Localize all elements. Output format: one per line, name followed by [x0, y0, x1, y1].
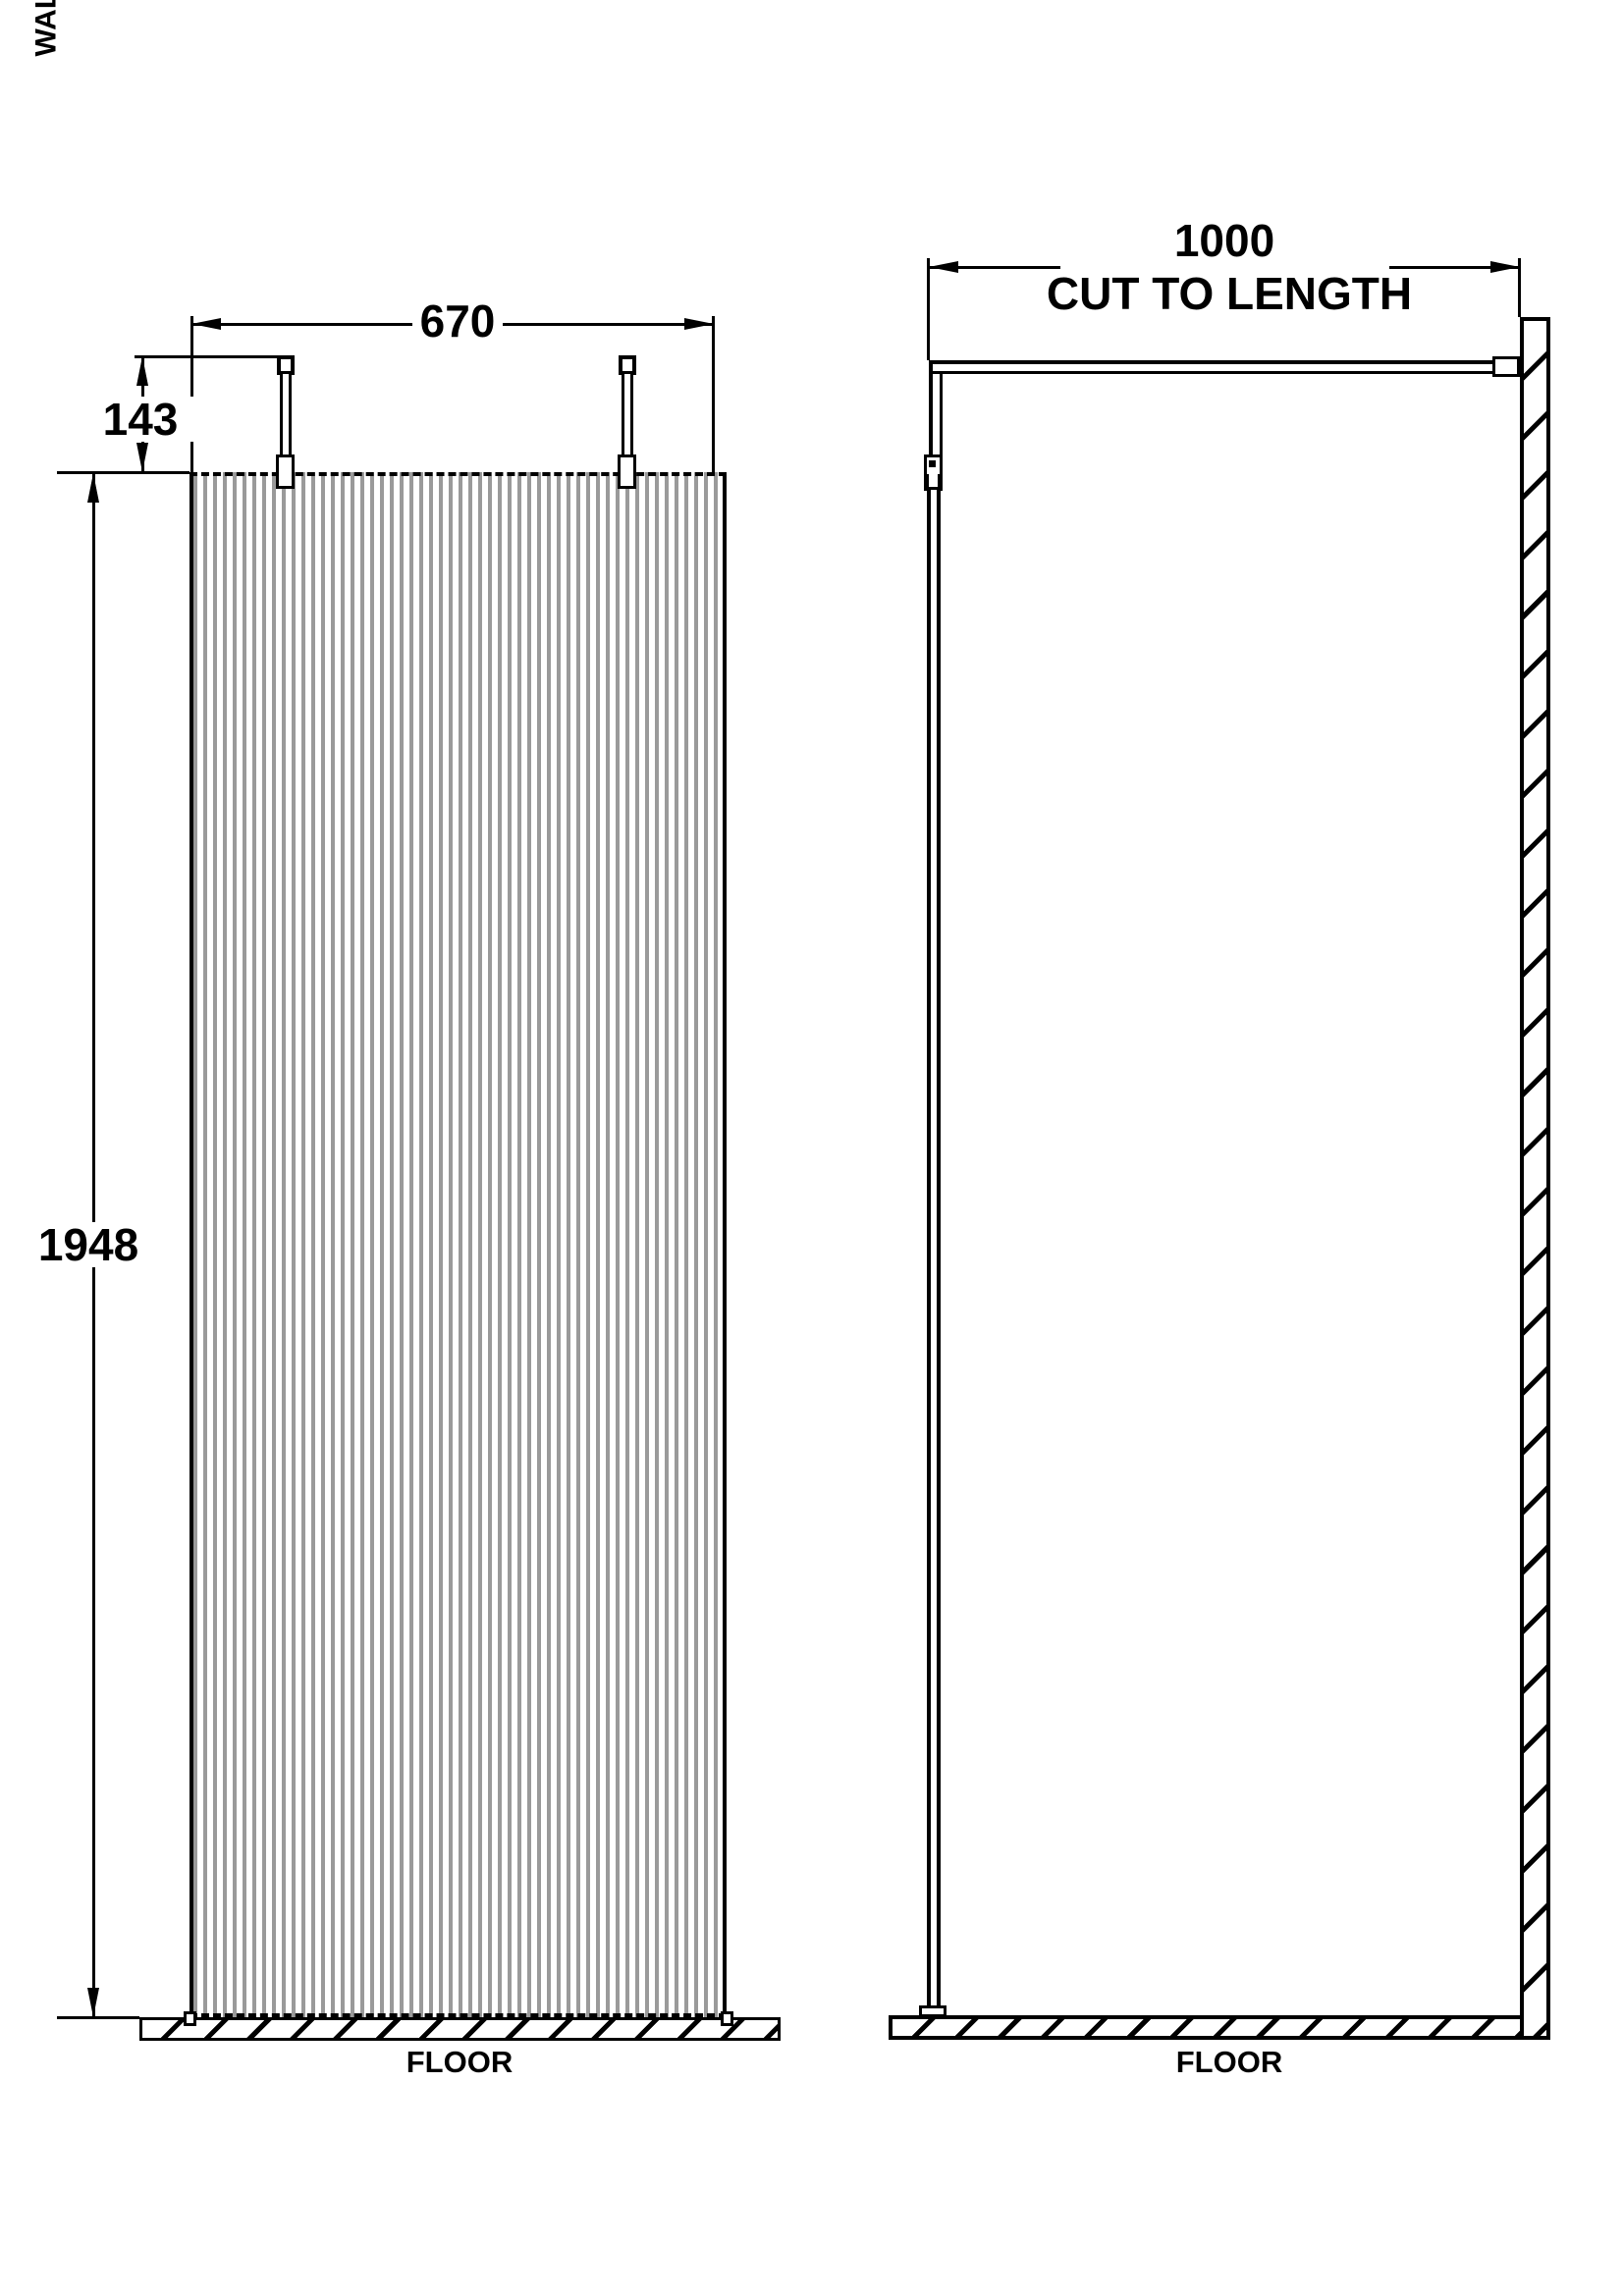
ext-line-1948-top [57, 471, 189, 474]
rod-cap-right [619, 355, 636, 375]
clamp-jaw-right [938, 474, 943, 491]
shower-screen-technical-drawing: FLOOR 670 143 1948 [0, 0, 1623, 2296]
dim-arrow-1948-top [87, 473, 99, 503]
glass-foot [919, 2005, 947, 2017]
dim-value-1000: 1000 [1126, 218, 1323, 263]
rod-clamp-right [618, 454, 636, 489]
dim-arrow-143-bottom [136, 443, 148, 472]
rod-stem-left [280, 374, 292, 455]
panel-foot-right [721, 2011, 733, 2026]
support-arm-horizontal [929, 360, 1495, 374]
clamp-jaw-left [924, 474, 929, 491]
dim-arrow-1000-left [929, 261, 958, 273]
floor-front [139, 2017, 781, 2041]
panel-foot-left [184, 2011, 196, 2026]
support-arm-corner [929, 364, 933, 374]
dim-value-1948: 1948 [32, 1222, 144, 1267]
floor-side [889, 2015, 1520, 2040]
floor-label-side: FLOOR [1131, 2047, 1327, 2077]
dim-arrow-670-left [191, 318, 221, 330]
dim-arrow-1000-right [1490, 261, 1520, 273]
floor-label-front: FLOOR [361, 2047, 558, 2077]
rod-stem-right [622, 374, 633, 455]
ext-line-670-left [190, 316, 193, 473]
fluted-glass-panel [189, 472, 727, 2017]
ext-line-1000-left [927, 258, 930, 360]
rod-cap-left [277, 355, 295, 375]
dim-arrow-143-top [136, 356, 148, 386]
ext-line-670-right [712, 316, 715, 473]
rod-clamp-left [276, 454, 295, 489]
wall-mount-bracket [1492, 356, 1520, 377]
dim-arrow-670-right [684, 318, 714, 330]
clamp-screw-dot [929, 460, 936, 467]
ext-line-143-top [135, 355, 278, 358]
wall-label: WALL [32, 0, 62, 62]
wall [1520, 317, 1550, 2040]
dim-note-cut-to-length: CUT TO LENGTH [1033, 271, 1426, 316]
side-view: FLOOR WALL 1000 CUT TO LENGTH [0, 0, 1623, 29]
dim-arrow-1948-bottom [87, 1988, 99, 2017]
support-arm-vertical [929, 374, 943, 454]
dim-value-143: 143 [83, 397, 197, 442]
dim-value-670: 670 [412, 298, 503, 344]
glass-panel-edge [927, 488, 941, 2005]
